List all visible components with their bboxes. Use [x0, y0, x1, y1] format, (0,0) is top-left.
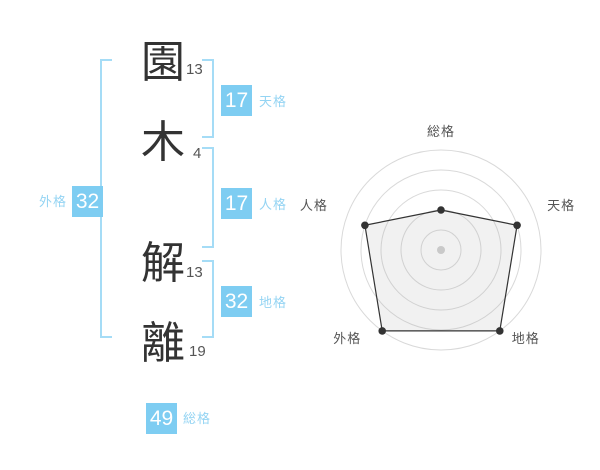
tenkaku-score-label: 天格: [259, 95, 287, 109]
radar-vertex-dot: [496, 327, 504, 335]
jinkaku-bracket: [202, 147, 214, 248]
gaikaku-score-box: 32: [72, 186, 103, 217]
name-character-1: 園: [132, 40, 194, 86]
radar-axis-label: 総格: [427, 124, 455, 139]
tenkaku-score-box: 17: [221, 85, 252, 116]
radar-axis-label: 天格: [547, 198, 575, 213]
jinkaku-score-box: 17: [221, 188, 252, 219]
chikaku-score-box: 32: [221, 286, 252, 317]
radar-data-polygon: [365, 210, 517, 331]
radar-axis-label: 地格: [512, 331, 540, 346]
name-character-3: 解: [132, 241, 194, 287]
radar-vertex-dot: [361, 221, 369, 229]
chikaku-score-label: 地格: [259, 296, 287, 310]
name-character-4: 離: [132, 321, 194, 367]
name-fortune-result: 園 木 解 離 13 4 13 19 17 天格 17 人格 32 地格 外格 …: [0, 0, 600, 470]
stroke-count-4: 19: [189, 344, 206, 360]
radar-center-dot: [437, 246, 445, 254]
fortune-radar-chart: 総格天格地格外格人格: [290, 100, 600, 380]
gaikaku-score-label: 外格: [37, 195, 67, 209]
jinkaku-score-label: 人格: [259, 198, 287, 212]
soukaku-score-box: 49: [146, 403, 177, 434]
radar-axis-label: 人格: [300, 198, 328, 213]
chikaku-bracket: [202, 260, 214, 338]
stroke-count-1: 13: [186, 62, 203, 78]
radar-vertex-dot: [437, 206, 445, 214]
stroke-count-3: 13: [186, 265, 203, 281]
radar-vertex-dot: [513, 221, 521, 229]
tenkaku-bracket: [202, 59, 214, 138]
stroke-count-2: 4: [193, 146, 201, 162]
name-character-2: 木: [132, 120, 194, 166]
soukaku-score-label: 総格: [183, 412, 211, 426]
radar-vertex-dot: [378, 327, 386, 335]
radar-axis-label: 外格: [333, 331, 361, 346]
